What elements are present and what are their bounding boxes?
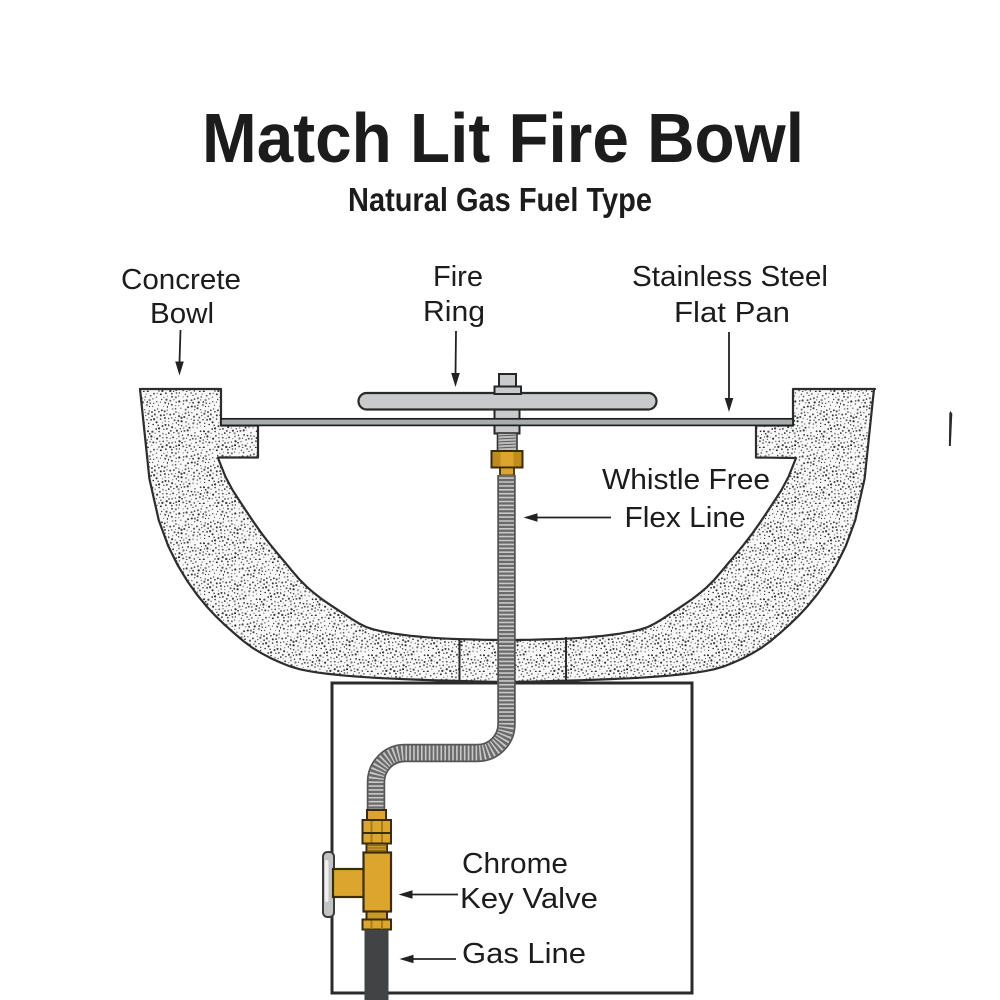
svg-text:Gas Line: Gas Line — [462, 938, 586, 970]
svg-text:Whistle Free: Whistle Free — [602, 464, 770, 496]
svg-text:Bowl: Bowl — [150, 298, 214, 330]
svg-text:Key Valve: Key Valve — [460, 883, 598, 915]
svg-text:Match Lit Fire Bowl: Match Lit Fire Bowl — [202, 99, 804, 177]
svg-text:Flex Line: Flex Line — [625, 502, 746, 534]
svg-text:Flat Pan: Flat Pan — [674, 297, 790, 329]
svg-text:Fire: Fire — [433, 261, 483, 293]
svg-text:Chrome: Chrome — [462, 848, 568, 880]
svg-text:Ring: Ring — [423, 296, 485, 328]
svg-text:Concrete: Concrete — [121, 264, 241, 296]
svg-text:Stainless Steel: Stainless Steel — [632, 261, 828, 293]
svg-text:Natural Gas Fuel Type: Natural Gas Fuel Type — [348, 181, 652, 218]
